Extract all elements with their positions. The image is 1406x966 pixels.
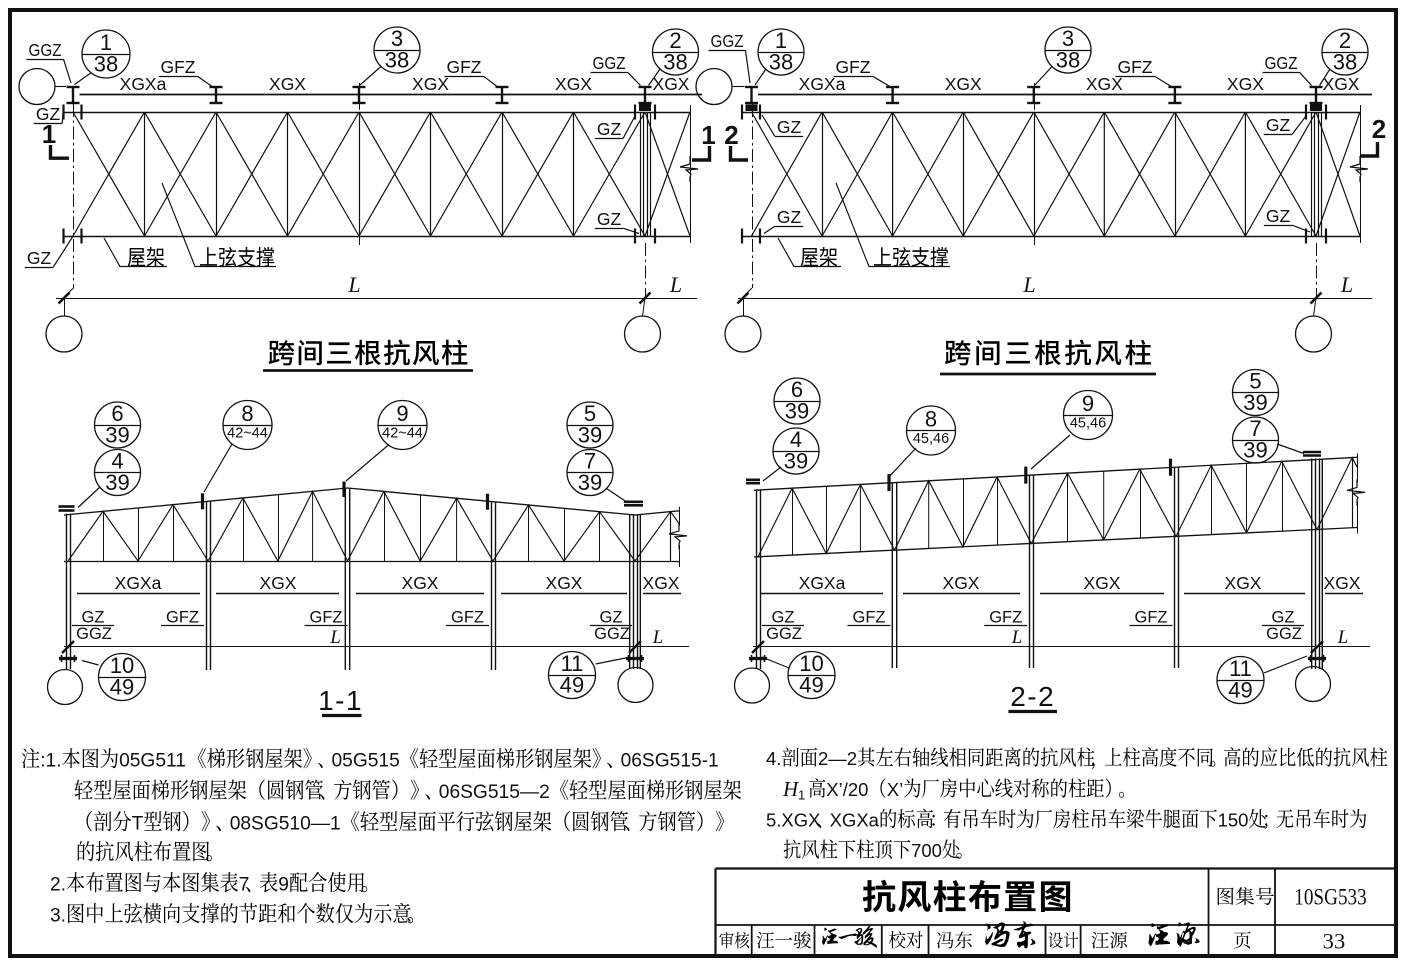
svg-text:GGZ: GGZ xyxy=(29,40,62,60)
svg-text:T: T xyxy=(132,814,144,835)
svg-text:GFZ: GFZ xyxy=(451,609,484,627)
svg-text:GGZ: GGZ xyxy=(766,625,802,643)
svg-text:GZ: GZ xyxy=(597,119,622,139)
svg-text:38: 38 xyxy=(769,50,793,75)
svg-text:2—2: 2—2 xyxy=(818,748,857,769)
svg-text:GZ: GZ xyxy=(27,248,52,268)
svg-text:GGZ: GGZ xyxy=(594,625,630,643)
svg-text:39: 39 xyxy=(578,423,602,448)
svg-text:GFZ: GFZ xyxy=(447,57,482,77)
svg-text:L: L xyxy=(329,627,341,648)
svg-text:GGZ: GGZ xyxy=(593,53,626,73)
svg-text:XGX: XGX xyxy=(402,573,439,593)
svg-text:39: 39 xyxy=(578,470,602,495)
svg-text:XGX: XGX xyxy=(546,573,583,593)
svg-text:GZ: GZ xyxy=(597,209,622,229)
svg-text:XGX: XGX xyxy=(1225,573,1262,593)
svg-text:38: 38 xyxy=(385,48,409,73)
svg-text:XGXa: XGXa xyxy=(830,810,880,831)
svg-text:2: 2 xyxy=(724,120,738,150)
svg-text:GGZ: GGZ xyxy=(1265,53,1298,73)
svg-text:GZ: GZ xyxy=(777,207,802,227)
svg-text:42~44: 42~44 xyxy=(382,426,423,442)
svg-text:L: L xyxy=(1340,272,1353,297)
svg-text:39: 39 xyxy=(105,470,129,495)
svg-text:GFZ: GFZ xyxy=(1135,609,1168,627)
svg-text:39: 39 xyxy=(784,449,808,474)
svg-text:49: 49 xyxy=(1228,678,1252,703)
svg-text:XGX: XGX xyxy=(269,74,306,94)
svg-text:39: 39 xyxy=(785,399,809,424)
svg-text:38: 38 xyxy=(1056,48,1080,73)
svg-text:GZ: GZ xyxy=(82,609,105,627)
svg-text:X’/20: X’/20 xyxy=(826,779,868,800)
svg-text:1: 1 xyxy=(701,120,715,150)
svg-text:L: L xyxy=(1011,627,1023,648)
svg-text:49: 49 xyxy=(799,673,823,698)
svg-text:GFZ: GFZ xyxy=(1118,57,1153,77)
svg-text:33: 33 xyxy=(1323,929,1346,954)
svg-text:1: 1 xyxy=(42,119,56,149)
svg-text:XGX: XGX xyxy=(412,74,449,94)
svg-text:XGX: XGX xyxy=(555,74,592,94)
svg-text:GFZ: GFZ xyxy=(836,57,871,77)
svg-text:XGX: XGX xyxy=(943,573,980,593)
svg-text:9: 9 xyxy=(1082,391,1094,416)
svg-text:XGX: XGX xyxy=(653,74,690,94)
svg-text:GFZ: GFZ xyxy=(989,609,1022,627)
svg-text:39: 39 xyxy=(105,423,129,448)
svg-text:L: L xyxy=(347,272,360,297)
svg-text:3.: 3. xyxy=(50,906,66,927)
svg-text:39: 39 xyxy=(1243,390,1267,415)
svg-text:XGX: XGX xyxy=(945,74,982,94)
svg-text:2-2: 2-2 xyxy=(1010,681,1055,712)
svg-text:4.: 4. xyxy=(766,748,781,769)
svg-text:45,46: 45,46 xyxy=(913,431,949,447)
svg-text:05G515: 05G515 xyxy=(332,751,400,772)
svg-text:49: 49 xyxy=(110,675,134,700)
svg-text:L: L xyxy=(652,627,664,648)
svg-text:1-1: 1-1 xyxy=(318,685,363,716)
svg-text:GFZ: GFZ xyxy=(161,57,196,77)
svg-text:GGZ: GGZ xyxy=(1266,625,1302,643)
svg-text:9: 9 xyxy=(278,875,289,896)
svg-text:700: 700 xyxy=(911,840,942,861)
svg-text:08SG510—1: 08SG510—1 xyxy=(230,814,341,835)
svg-text:GZ: GZ xyxy=(1266,206,1291,226)
svg-text:38: 38 xyxy=(94,52,118,77)
svg-text:XGX: XGX xyxy=(1227,74,1264,94)
svg-text:L: L xyxy=(1022,272,1035,297)
svg-text:GGZ: GGZ xyxy=(76,625,112,643)
svg-text:38: 38 xyxy=(663,50,687,75)
svg-text:XGXa: XGXa xyxy=(115,573,162,593)
svg-text:150: 150 xyxy=(1218,810,1249,831)
svg-text:5.XGX: 5.XGX xyxy=(766,810,821,831)
svg-text:XGX: XGX xyxy=(1324,573,1361,593)
svg-text:06SG515—2: 06SG515—2 xyxy=(439,782,550,803)
svg-text:GZ: GZ xyxy=(777,117,802,137)
svg-text:GZ: GZ xyxy=(772,609,795,627)
svg-text:49: 49 xyxy=(560,673,584,698)
svg-text::1.: :1. xyxy=(40,751,61,772)
svg-text:GZ: GZ xyxy=(600,609,623,627)
svg-text:GFZ: GFZ xyxy=(310,609,343,627)
svg-text:X’: X’ xyxy=(887,779,903,800)
svg-text:9: 9 xyxy=(396,401,408,426)
svg-text:45,46: 45,46 xyxy=(1070,416,1106,432)
svg-text:1: 1 xyxy=(798,788,805,803)
svg-text:38: 38 xyxy=(1333,50,1357,75)
svg-text:10SG533: 10SG533 xyxy=(1294,885,1367,910)
svg-text:2.: 2. xyxy=(50,875,66,896)
svg-text:XGXa: XGXa xyxy=(799,573,846,593)
svg-text:GFZ: GFZ xyxy=(166,609,199,627)
svg-text:GGZ: GGZ xyxy=(711,31,744,51)
svg-text:XGX: XGX xyxy=(1084,573,1121,593)
svg-text:XGX: XGX xyxy=(643,573,680,593)
svg-text:8: 8 xyxy=(925,406,937,431)
svg-text:7: 7 xyxy=(239,875,250,896)
svg-text:XGX: XGX xyxy=(1323,74,1360,94)
svg-text:39: 39 xyxy=(1243,438,1267,463)
svg-text:L: L xyxy=(669,272,682,297)
svg-text:05G511: 05G511 xyxy=(119,751,186,772)
svg-text:GZ: GZ xyxy=(1272,609,1295,627)
svg-text:2: 2 xyxy=(1372,114,1386,144)
svg-text:XGX: XGX xyxy=(260,573,297,593)
svg-text:L: L xyxy=(1337,627,1349,648)
svg-text:GFZ: GFZ xyxy=(853,609,886,627)
svg-text:GZ: GZ xyxy=(1266,115,1291,135)
svg-text:8: 8 xyxy=(241,401,253,426)
svg-text:42~44: 42~44 xyxy=(227,426,268,442)
svg-text:06SG515-1: 06SG515-1 xyxy=(621,751,719,772)
